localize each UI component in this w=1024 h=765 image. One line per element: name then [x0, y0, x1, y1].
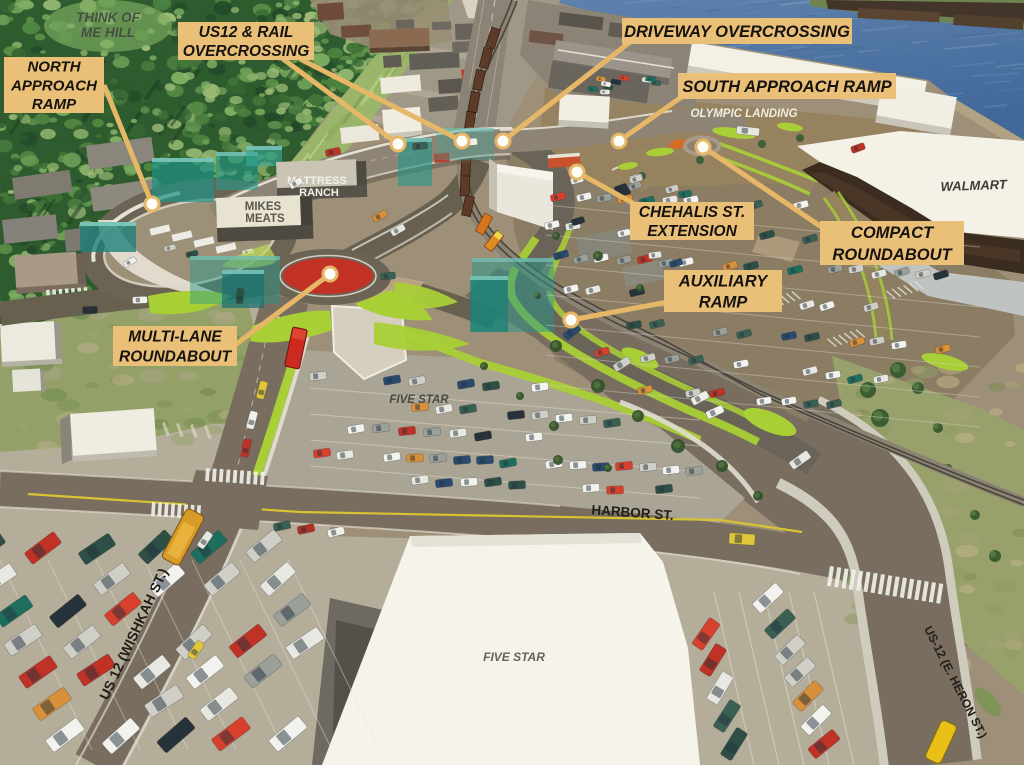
svg-text:CHEHALIS ST.: CHEHALIS ST.	[639, 204, 746, 221]
svg-text:RAMP: RAMP	[699, 293, 749, 311]
svg-text:MULTI-LANE: MULTI-LANE	[128, 329, 222, 346]
svg-text:DRIVEWAY OVERCROSSING: DRIVEWAY OVERCROSSING	[624, 23, 850, 41]
svg-text:APPROACH: APPROACH	[10, 77, 98, 94]
svg-text:ROUNDABOUT: ROUNDABOUT	[119, 349, 232, 366]
svg-text:US12 & RAIL: US12 & RAIL	[199, 24, 294, 41]
svg-text:NORTH: NORTH	[27, 59, 81, 76]
svg-text:MEATS: MEATS	[245, 213, 285, 225]
svg-text:WALMART: WALMART	[940, 177, 1008, 194]
svg-text:FIVE STAR: FIVE STAR	[483, 650, 545, 664]
svg-text:EXTENSION: EXTENSION	[647, 223, 737, 240]
svg-text:COMPACT: COMPACT	[851, 224, 935, 242]
svg-text:THINK OF: THINK OF	[76, 10, 140, 25]
svg-text:OVERCROSSING: OVERCROSSING	[183, 43, 310, 60]
svg-text:AUXILIARY: AUXILIARY	[678, 272, 770, 290]
svg-text:ROUNDABOUT: ROUNDABOUT	[832, 246, 953, 264]
svg-text:SOUTH APPROACH RAMP: SOUTH APPROACH RAMP	[682, 78, 892, 96]
svg-text:OLYMPIC LANDING: OLYMPIC LANDING	[690, 108, 797, 120]
svg-text:RAMP: RAMP	[32, 96, 77, 113]
svg-text:ME HILL: ME HILL	[81, 25, 135, 40]
svg-text:FIVE STAR: FIVE STAR	[389, 394, 449, 406]
svg-text:MIKES: MIKES	[245, 201, 282, 213]
